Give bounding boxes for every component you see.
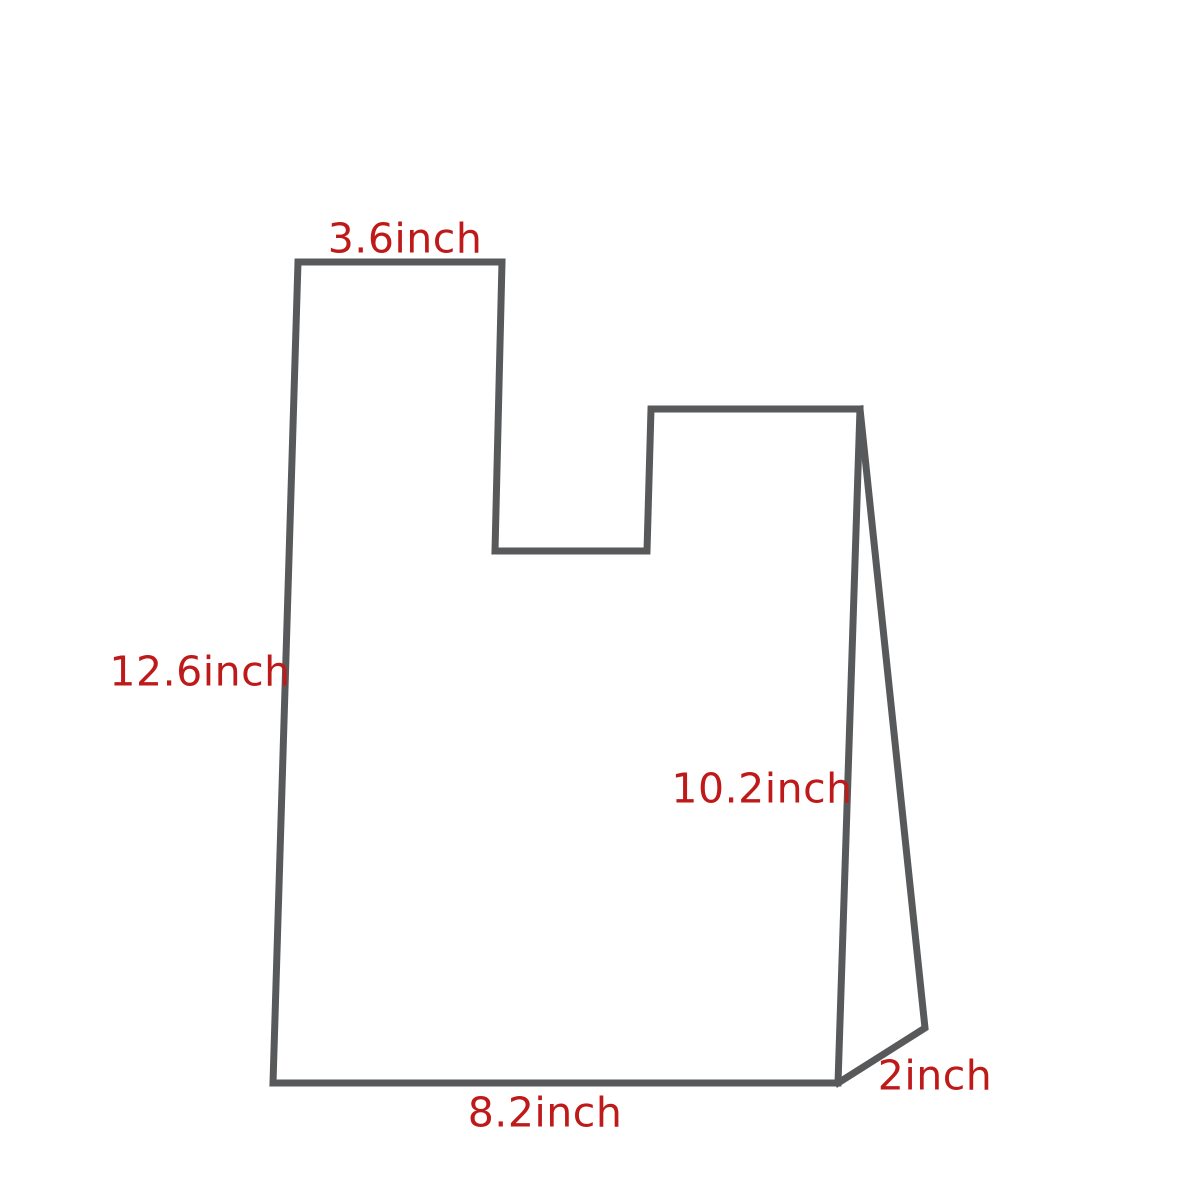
bag-dimension-diagram: 3.6inch 12.6inch 10.2inch 2inch 8.2inch [0, 0, 1200, 1200]
bag-outline [273, 262, 860, 1083]
bag-drawing [0, 0, 1200, 1200]
dim-label-gusset-depth: 2inch [878, 1056, 993, 1097]
dim-label-side-height: 10.2inch [671, 769, 852, 810]
dim-label-handle-width: 3.6inch [328, 219, 483, 260]
dim-label-bag-height: 12.6inch [109, 652, 290, 693]
dim-label-bag-width: 8.2inch [468, 1093, 623, 1134]
